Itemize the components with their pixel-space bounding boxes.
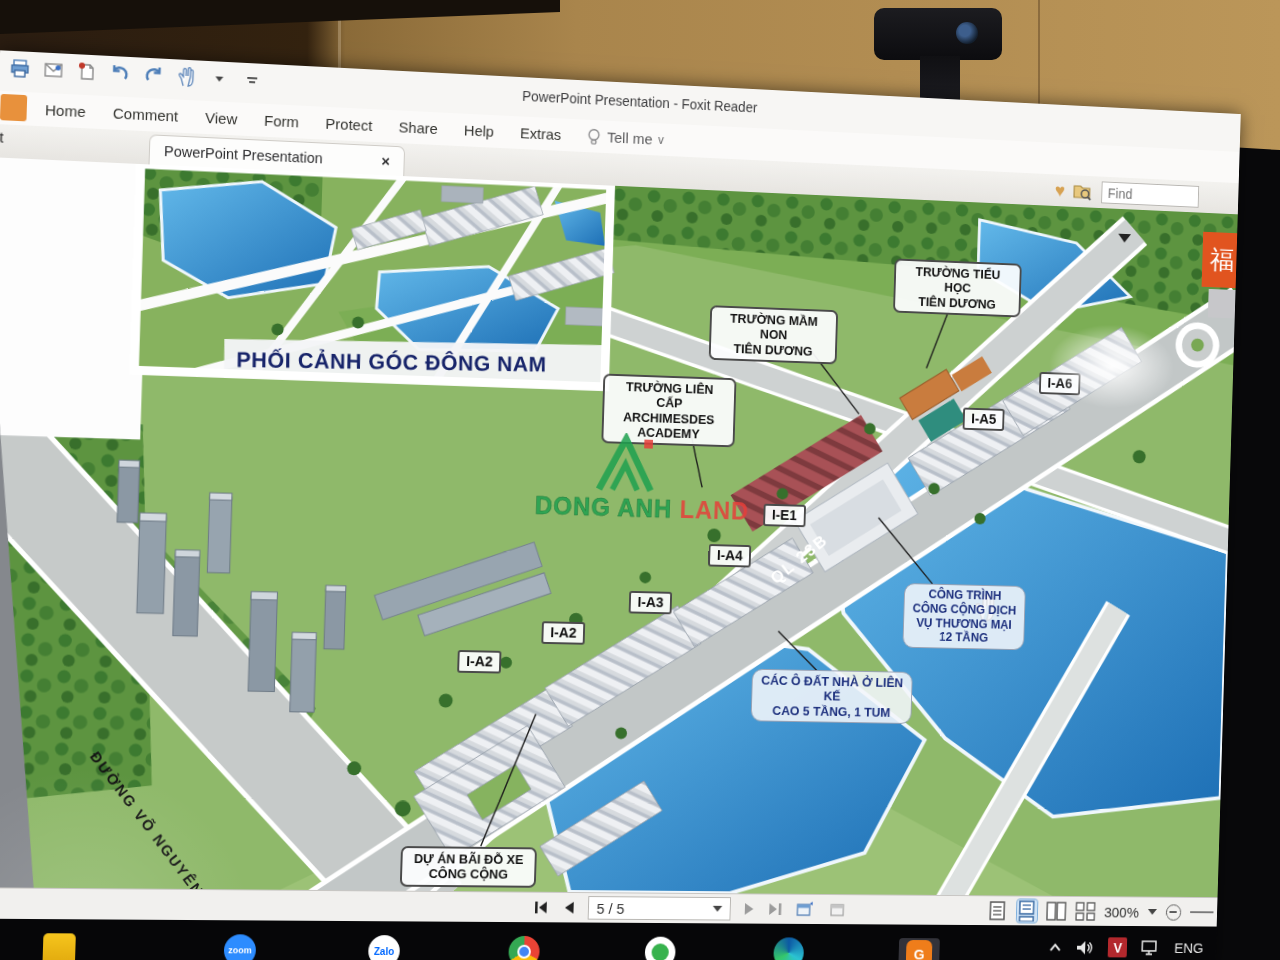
taskbar-files-icon[interactable] <box>42 933 75 960</box>
email-icon[interactable] <box>41 57 66 82</box>
chevron-down-icon: v <box>658 133 664 147</box>
speaker-icon[interactable] <box>1076 940 1094 955</box>
taskbar-edge-icon[interactable] <box>773 937 804 960</box>
masterplan-render: QL 23B ĐƯỜNG VÕ NGUYÊN GIÁP <box>0 157 1238 897</box>
search-folder-icon[interactable] <box>1073 181 1094 201</box>
system-tray: V ENG <box>1049 937 1204 958</box>
quick-access-toolbar <box>7 56 264 93</box>
callout-i-e1: I-E1 <box>763 504 806 527</box>
document-area[interactable]: QL 23B ĐƯỜNG VÕ NGUYÊN GIÁP <box>0 157 1238 897</box>
menu-view[interactable]: View <box>205 109 238 128</box>
page-navigation: 5 / 5 <box>534 896 846 922</box>
zalo-app-label: Zalo <box>374 946 394 957</box>
zoom-app-label: zoom <box>228 945 252 955</box>
menu-extras[interactable]: Extras <box>520 124 561 143</box>
photo-of-monitor: PowerPoint Presentation - Foxit Reader H… <box>0 0 1280 960</box>
dropdown-arrow-icon[interactable] <box>207 66 232 91</box>
page-number-value: 5 / 5 <box>596 900 624 917</box>
page-number-field[interactable]: 5 / 5 <box>588 896 731 920</box>
panel-tile[interactable] <box>1208 289 1238 319</box>
favorite-heart-icon[interactable]: ♥ <box>1055 180 1066 201</box>
dong-anh-land-logo-icon <box>587 432 663 495</box>
webcam-stand <box>920 56 960 100</box>
undo-icon[interactable] <box>108 61 133 86</box>
windows-taskbar: zoom Zalo G V ENG <box>0 919 1217 960</box>
zoom-out-icon[interactable] <box>1166 904 1182 920</box>
find-dropdown-icon[interactable] <box>1118 234 1131 243</box>
redo-icon[interactable] <box>141 63 166 88</box>
webcam-lens-icon <box>956 22 978 44</box>
previous-view-icon[interactable] <box>795 901 814 919</box>
webcam-body <box>874 8 1002 60</box>
unikey-icon[interactable]: V <box>1108 937 1128 957</box>
menu-comment[interactable]: Comment <box>113 104 179 124</box>
window-title: PowerPoint Presentation - Foxit Reader <box>522 88 758 115</box>
callout-i-a2: I-A2 <box>541 621 585 644</box>
zoom-level[interactable]: 300% <box>1104 903 1139 919</box>
find-input[interactable] <box>1101 181 1199 207</box>
callout-i-a5: I-A5 <box>963 408 1005 431</box>
taskbar-coccoc-icon[interactable] <box>644 937 675 960</box>
network-display-icon[interactable] <box>1142 940 1160 955</box>
tray-chevron-up-icon[interactable] <box>1049 942 1062 952</box>
menu-protect[interactable]: Protect <box>325 115 372 134</box>
taskbar-zoom-icon[interactable]: zoom <box>223 934 256 960</box>
next-page-icon[interactable] <box>743 901 757 917</box>
callout-cong-trinh-thuong-mai: CÔNG TRÌNH CÔNG CỘNG DỊCH VỤ THƯƠNG MẠI … <box>902 583 1025 650</box>
previous-page-icon[interactable] <box>562 900 576 916</box>
zoom-cluster: 300% <box>987 899 1214 924</box>
taskbar-zalo-icon[interactable]: Zalo <box>368 935 400 960</box>
menu-form[interactable]: Form <box>264 112 299 131</box>
cut-off-text-fragment: t <box>0 128 4 145</box>
webcam <box>868 0 1008 100</box>
foxit-reader-window: PowerPoint Presentation - Foxit Reader H… <box>0 50 1241 960</box>
watermark-name: DONG ANH <box>535 491 673 522</box>
new-document-icon[interactable] <box>74 59 99 84</box>
taskbar-chrome-icon[interactable] <box>508 936 540 960</box>
callout-bai-do-xe: DỰ ÁN BÃI ĐỖ XE CÔNG CỘNG <box>400 846 537 887</box>
single-page-view-icon[interactable] <box>987 899 1008 922</box>
language-indicator[interactable]: ENG <box>1174 940 1204 956</box>
taskbar-g-app-icon[interactable]: G <box>898 938 940 960</box>
page-dropdown-icon[interactable] <box>713 906 723 912</box>
last-page-icon[interactable] <box>768 901 784 917</box>
close-icon[interactable]: × <box>381 152 390 169</box>
zoom-dropdown-icon[interactable] <box>1148 909 1157 915</box>
watermark-suffix: LAND <box>679 495 749 524</box>
callout-i-a2-b: I-A2 <box>457 650 502 673</box>
callout-truong-tieu-hoc: TRƯỜNG TIỂU HỌC TIÊN DƯƠNG <box>893 258 1022 317</box>
printer-icon[interactable] <box>7 56 32 81</box>
callout-cac-o-dat-lien-ke: CÁC Ô ĐẤT NHÀ Ở LIÊN KẾ CAO 5 TẦNG, 1 TU… <box>751 669 913 724</box>
fortune-panel-tile[interactable]: 福 <box>1202 232 1238 289</box>
menu-home[interactable]: Home <box>45 101 86 120</box>
hand-tool-icon[interactable] <box>174 64 199 89</box>
find-cluster: ♥ <box>1054 179 1199 208</box>
g-app-label: G <box>906 940 933 960</box>
customize-toolbar-icon[interactable] <box>240 68 265 93</box>
continuous-facing-view-icon[interactable] <box>1075 900 1096 923</box>
tab-label: PowerPoint Presentation <box>164 143 323 166</box>
facing-pages-view-icon[interactable] <box>1046 900 1067 923</box>
menu-share[interactable]: Share <box>398 118 438 137</box>
first-page-icon[interactable] <box>534 900 550 916</box>
next-view-icon[interactable] <box>826 901 845 919</box>
dong-anh-land-watermark: DONG ANH LAND <box>535 430 714 524</box>
callout-i-a3: I-A3 <box>629 591 673 614</box>
callout-i-a6: I-A6 <box>1039 372 1081 395</box>
file-menu-tile[interactable] <box>0 94 27 122</box>
callout-truong-mam-non: TRƯỜNG MẦM NON TIÊN DƯƠNG <box>709 305 838 364</box>
lightbulb-icon <box>587 127 602 145</box>
continuous-view-icon[interactable] <box>1016 899 1037 922</box>
menu-help[interactable]: Help <box>464 122 494 140</box>
tell-me-label: Tell me <box>607 129 653 148</box>
zoom-slider[interactable] <box>1190 911 1213 913</box>
tell-me-search[interactable]: Tell me v <box>587 127 664 148</box>
callout-i-a4: I-A4 <box>708 544 752 567</box>
